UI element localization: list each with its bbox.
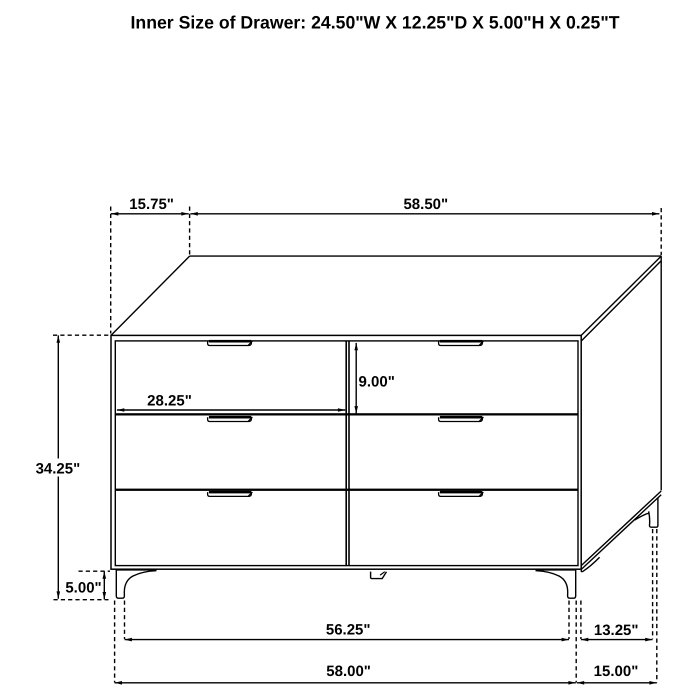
svg-text:56.25": 56.25" bbox=[326, 622, 371, 639]
svg-text:Inner Size of Drawer: 24.50"W: Inner Size of Drawer: 24.50"W X 12.25"D … bbox=[131, 12, 620, 32]
svg-text:15.75": 15.75" bbox=[129, 196, 174, 213]
svg-text:9.00": 9.00" bbox=[359, 374, 395, 391]
svg-text:34.25": 34.25" bbox=[36, 461, 81, 478]
svg-text:28.25": 28.25" bbox=[147, 392, 192, 409]
svg-text:58.00": 58.00" bbox=[326, 663, 371, 680]
svg-text:5.00": 5.00" bbox=[65, 580, 101, 597]
svg-text:58.50": 58.50" bbox=[403, 196, 448, 213]
svg-text:15.00": 15.00" bbox=[594, 663, 639, 680]
svg-text:13.25": 13.25" bbox=[594, 622, 639, 639]
